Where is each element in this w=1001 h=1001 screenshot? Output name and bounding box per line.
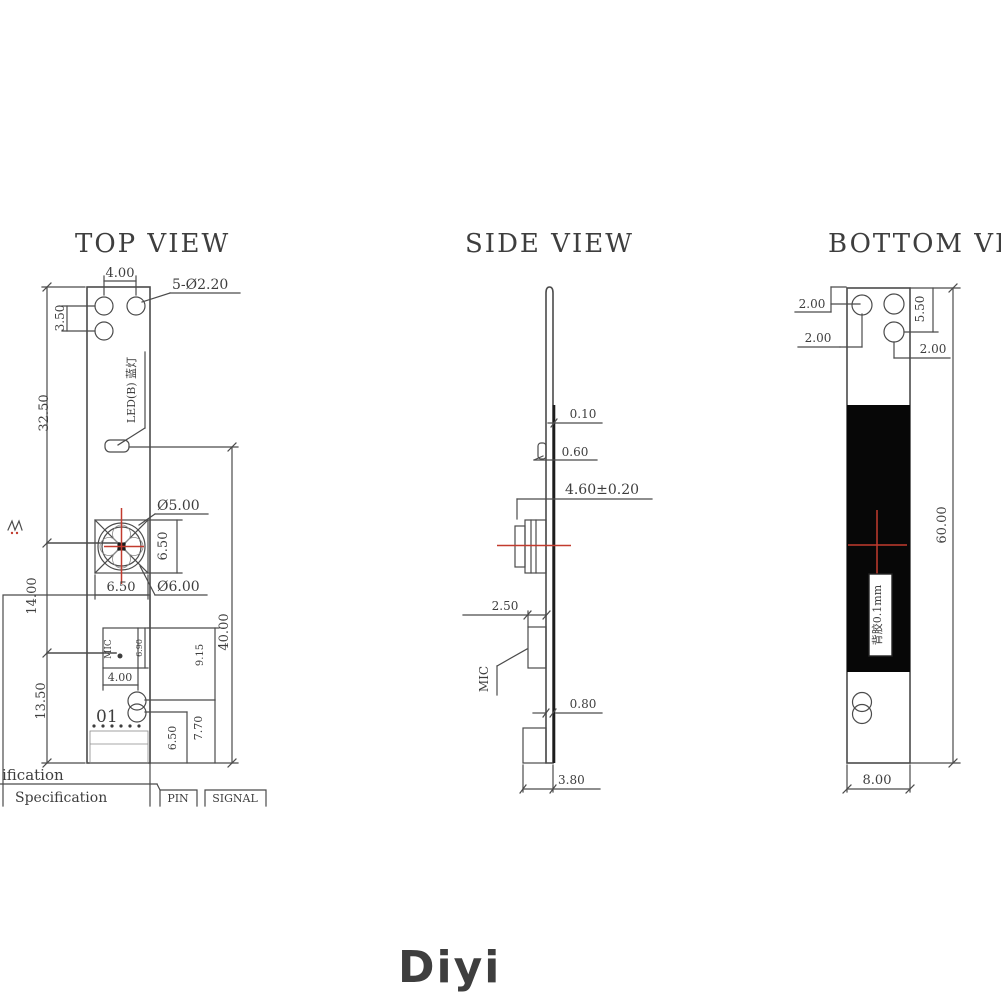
dim-mic-w: 4.00 xyxy=(103,668,138,690)
top-view-title: TOP VIEW xyxy=(75,229,230,259)
side-board-profile xyxy=(546,287,553,763)
bottom-view-title: BOTTOM VIEW xyxy=(828,229,1001,259)
revision-squiggle-mark xyxy=(8,521,22,534)
connector-body xyxy=(90,731,148,763)
side-lens-profile xyxy=(497,520,571,573)
dim-hole-edge-top-label: 2.00 xyxy=(799,297,826,311)
bottom-view: BOTTOM VIEW 背胶0.1mm 2.00 xyxy=(795,229,1001,793)
dim-mic-thickness: 2.50 xyxy=(463,599,550,627)
top-board-outline xyxy=(87,287,150,763)
side-view-title: SIDE VIEW xyxy=(465,229,634,259)
spec-col-pin: PIN xyxy=(167,792,189,805)
dim-led-to-bottom: 40.00 xyxy=(129,443,238,767)
spec-row2: Specification xyxy=(15,790,107,806)
dim-board-length: 60.00 xyxy=(910,284,960,767)
technical-drawing: TOP VIEW 4.00 5-Ø2.20 3.50 xyxy=(0,0,1001,1001)
dim-mic-to-bottom-label: 13.50 xyxy=(34,682,49,719)
top-view: TOP VIEW 4.00 5-Ø2.20 3.50 xyxy=(0,229,266,806)
dim-board-thickness-label: 0.80 xyxy=(570,697,597,711)
mic-label: MIC xyxy=(104,639,114,659)
dim-mic-h: 6.90 xyxy=(135,628,148,668)
dim-hole3-edge: 2.00 xyxy=(894,342,950,358)
dim-hole-row-offset: 3.50 xyxy=(53,305,95,332)
dim-lens-height-label: 4.60±0.20 xyxy=(565,482,639,498)
bottom-mounting-holes xyxy=(852,294,904,342)
dim-hole-row-offset-label: 3.50 xyxy=(53,305,67,332)
dim-left-chain: 32.50 14.00 13.50 xyxy=(25,283,119,767)
dim-mic-thickness-label: 2.50 xyxy=(492,599,519,613)
dim-hole3-edge-label: 2.00 xyxy=(920,342,947,356)
dim-lens-inner-dia-label: Ø5.00 xyxy=(157,498,200,514)
dim-hole-pitch: 4.00 xyxy=(104,266,136,295)
side-connector-block xyxy=(523,728,546,763)
note-hole-diameter-label: 5-Ø2.20 xyxy=(172,277,228,293)
dim-mic-to-slot-label: 9.15 xyxy=(195,644,206,666)
note-hole-diameter: 5-Ø2.20 xyxy=(142,277,240,302)
dim-board-width: 8.00 xyxy=(843,765,914,793)
dim-lens-height: 4.60±0.20 xyxy=(517,482,652,519)
dim-board-thickness: 0.80 xyxy=(533,697,602,717)
dim-connector-width-label: 3.80 xyxy=(558,773,585,787)
dim-hole-edge-left: 2.00 xyxy=(798,314,862,347)
dim-tape-thickness: 0.10 xyxy=(548,407,602,427)
dim-hole2-edge-label: 5.50 xyxy=(913,296,927,323)
dim-lens-outer-dia-label: Ø6.00 xyxy=(157,579,200,595)
dim-component-thickness-label: 0.60 xyxy=(562,445,589,459)
dim-mic-h-label: 6.90 xyxy=(135,639,144,657)
dim-connector-width: 3.80 xyxy=(520,765,600,793)
dim-board-length-label: 60.00 xyxy=(935,506,950,543)
side-mic-block: MIC xyxy=(477,627,546,695)
spec-row1: ification xyxy=(2,766,64,784)
adhesive-label: 背胶0.1mm xyxy=(870,584,884,645)
top-mounting-holes xyxy=(95,297,145,340)
pin1-marker: 01 xyxy=(96,707,118,727)
camera-lens xyxy=(95,508,148,584)
dim-top-to-lens-label: 32.50 xyxy=(37,394,52,431)
side-view: SIDE VIEW 0.10 0.60 4.60±0.20 xyxy=(463,229,652,793)
led-component: LED(B) 蓝灯 xyxy=(105,352,145,452)
microphone-component: MIC xyxy=(103,628,138,668)
dim-slot-upper-label: 7.70 xyxy=(192,716,205,741)
bottom-slot-hole xyxy=(853,693,872,724)
dim-hole2-edge: 5.50 xyxy=(904,288,938,332)
top-slot-hole xyxy=(128,692,146,722)
dim-lens-box-w-label: 6.50 xyxy=(107,580,136,595)
dim-lens-to-mic-label: 14.00 xyxy=(25,577,40,614)
dim-hole-edge-top: 2.00 xyxy=(795,287,860,312)
dim-lens-box-h-label: 6.50 xyxy=(156,532,171,561)
dim-slot-lower-label: 6.50 xyxy=(166,726,179,751)
dim-slot-group: 9.15 7.70 6.50 xyxy=(145,628,219,763)
dim-board-width-label: 8.00 xyxy=(863,773,892,788)
watermark-text: Diyi xyxy=(398,942,501,993)
dim-lens-box-h: 6.50 xyxy=(148,520,182,573)
dim-led-to-bottom-label: 40.00 xyxy=(217,613,232,650)
spec-col-signal: SIGNAL xyxy=(212,792,258,805)
adhesive-label-tag: 背胶0.1mm xyxy=(869,574,892,656)
drawing-canvas: TOP VIEW 4.00 5-Ø2.20 3.50 xyxy=(0,0,1001,1001)
led-label: LED(B) 蓝灯 xyxy=(125,357,138,423)
dim-component-thickness: 0.60 xyxy=(534,443,597,460)
side-mic-label: MIC xyxy=(477,666,491,692)
dim-hole-edge-left-label: 2.00 xyxy=(805,331,832,345)
dim-hole-pitch-label: 4.00 xyxy=(106,266,135,281)
dim-mic-w-label: 4.00 xyxy=(108,671,133,684)
dim-tape-thickness-label: 0.10 xyxy=(570,407,597,421)
